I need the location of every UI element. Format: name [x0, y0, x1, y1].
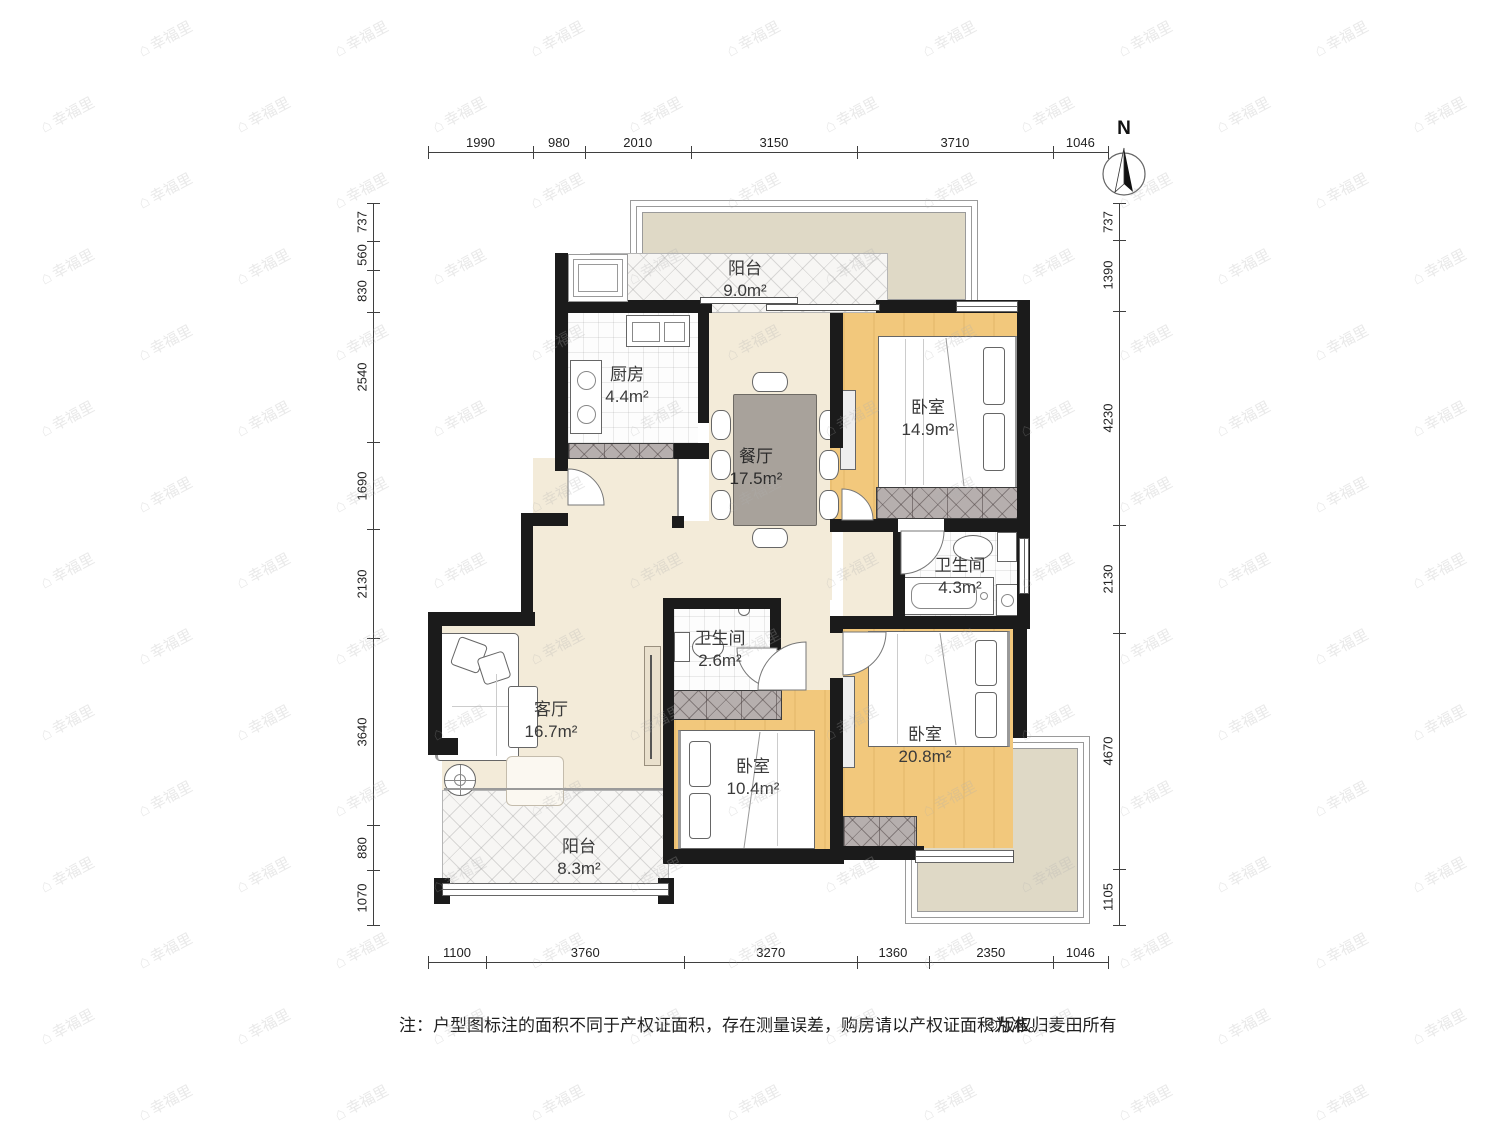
watermark: ⌂幸福里: [1212, 548, 1273, 594]
house-icon: ⌂: [135, 495, 153, 517]
room-name: 餐厅: [730, 446, 783, 467]
entry-closet: [568, 443, 674, 459]
dimension-value: 4670: [1101, 736, 1116, 765]
dimension-tick: [585, 146, 586, 159]
watermark-text: 幸福里: [1226, 94, 1274, 130]
watermark: ⌂幸福里: [36, 548, 97, 594]
dimension-value: 1990: [466, 135, 495, 150]
dimension-right: 73713904230213046701105: [1098, 203, 1122, 925]
watermark-text: 幸福里: [1226, 550, 1274, 586]
dimension-tick: [367, 529, 380, 530]
house-icon: ⌂: [821, 875, 839, 897]
watermark-text: 幸福里: [736, 1082, 784, 1118]
house-icon: ⌂: [37, 1027, 55, 1049]
dimension-tick: [857, 956, 858, 969]
dining-chair: [711, 450, 731, 480]
house-icon: ⌂: [233, 419, 251, 441]
watermark-text: 幸福里: [148, 474, 196, 510]
dimension-value: 2130: [1101, 564, 1116, 593]
fan-cross: [460, 765, 461, 795]
stove-burner: [577, 371, 596, 390]
house-icon: ⌂: [1409, 267, 1427, 289]
watermark-text: 幸福里: [148, 778, 196, 814]
house-icon: ⌂: [37, 875, 55, 897]
house-icon: ⌂: [1311, 647, 1329, 669]
dimension-tick: [1113, 311, 1126, 312]
wardrobe-bedroom-top: [876, 487, 1018, 519]
house-icon: ⌂: [331, 1103, 349, 1125]
wall: [830, 846, 924, 860]
house-icon: ⌂: [233, 1027, 251, 1049]
dimension-tick: [367, 925, 380, 926]
house-icon: ⌂: [331, 647, 349, 669]
watermark: ⌂幸福里: [134, 624, 195, 670]
house-icon: ⌂: [1213, 571, 1231, 593]
sink-bathroom-main: [996, 584, 1018, 616]
watermark-text: 幸福里: [50, 1006, 98, 1042]
house-icon: ⌂: [1213, 723, 1231, 745]
watermark-text: 幸福里: [50, 854, 98, 890]
watermark: ⌂幸福里: [1114, 472, 1175, 518]
room-area: 4.3m²: [935, 576, 986, 599]
room-label-living: 客厅 16.7m²: [525, 699, 578, 743]
watermark-text: 幸福里: [246, 1006, 294, 1042]
watermark-text: 幸福里: [1226, 246, 1274, 282]
watermark-text: 幸福里: [50, 246, 98, 282]
room-area: 2.6m²: [695, 649, 746, 672]
watermark: ⌂幸福里: [1114, 16, 1175, 62]
dimension-value: 1070: [355, 883, 370, 912]
house-icon: ⌂: [919, 1103, 937, 1125]
watermark: ⌂幸福里: [232, 548, 293, 594]
watermark: ⌂幸福里: [722, 16, 783, 62]
watermark: ⌂幸福里: [232, 396, 293, 442]
watermark: ⌂幸福里: [134, 168, 195, 214]
watermark: ⌂幸福里: [526, 16, 587, 62]
hall-floor-b: [777, 600, 830, 692]
watermark-text: 幸福里: [1030, 398, 1078, 434]
sink-basin: [632, 322, 660, 342]
watermark-text: 幸福里: [1226, 702, 1274, 738]
house-icon: ⌂: [1409, 571, 1427, 593]
house-icon: ⌂: [233, 875, 251, 897]
house-icon: ⌂: [429, 115, 447, 137]
room-label-balcony-top: 阳台 9.0m²: [723, 258, 766, 302]
kitchen-sink: [626, 315, 690, 347]
hall-floor-c: [843, 532, 893, 616]
compass-needle-icon: [1096, 138, 1152, 204]
house-icon: ⌂: [1311, 1103, 1329, 1125]
dimension-tick: [367, 870, 380, 871]
sink-bowl: [1001, 594, 1014, 607]
watermark: ⌂幸福里: [1212, 92, 1273, 138]
dimension-tick: [857, 146, 858, 159]
bedroom-door-floor: [843, 489, 877, 520]
dimension-bottom: 110037603270136023501046: [428, 950, 1108, 968]
wall: [663, 598, 781, 609]
house-icon: ⌂: [331, 343, 349, 365]
watermark: ⌂幸福里: [918, 16, 979, 62]
watermark-text: 幸福里: [1324, 474, 1372, 510]
watermark-text: 幸福里: [540, 18, 588, 54]
house-icon: ⌂: [527, 191, 545, 213]
watermark-text: 幸福里: [1422, 702, 1470, 738]
watermark-text: 幸福里: [1324, 322, 1372, 358]
room-name: 卧室: [902, 397, 955, 418]
dimension-tick: [1053, 956, 1054, 969]
watermark: ⌂幸福里: [1310, 928, 1371, 974]
watermark: ⌂幸福里: [232, 92, 293, 138]
house-icon: ⌂: [135, 951, 153, 973]
dimension-tick: [428, 146, 429, 159]
house-icon: ⌂: [331, 191, 349, 213]
watermark-text: 幸福里: [1128, 18, 1176, 54]
house-icon: ⌂: [1311, 951, 1329, 973]
watermark: ⌂幸福里: [134, 16, 195, 62]
house-icon: ⌂: [331, 495, 349, 517]
room-name: 阳台: [557, 836, 600, 857]
watermark-text: 幸福里: [540, 170, 588, 206]
room-label-bedroom-top-right: 卧室 14.9m²: [902, 397, 955, 441]
compass: N: [1096, 120, 1152, 206]
room-name: 卧室: [727, 756, 780, 777]
dimension-value: 1360: [878, 945, 907, 960]
tv-screen: [650, 655, 652, 759]
wall: [1013, 616, 1027, 738]
watermark: ⌂幸福里: [526, 168, 587, 214]
watermark-text: 幸福里: [1128, 1082, 1176, 1118]
house-icon: ⌂: [1311, 343, 1329, 365]
watermark-text: 幸福里: [344, 930, 392, 966]
watermark: ⌂幸福里: [134, 928, 195, 974]
watermark-text: 幸福里: [1226, 854, 1274, 890]
dimension-tick: [1053, 146, 1054, 159]
house-icon: ⌂: [1311, 191, 1329, 213]
watermark-text: 幸福里: [246, 246, 294, 282]
watermark-text: 幸福里: [1324, 18, 1372, 54]
house-icon: ⌂: [233, 115, 251, 137]
pillow: [975, 640, 997, 686]
house-icon: ⌂: [1213, 267, 1231, 289]
dimension-tick: [533, 146, 534, 159]
watermark-text: 幸福里: [246, 550, 294, 586]
watermark-text: 幸福里: [834, 94, 882, 130]
watermark: ⌂幸福里: [330, 928, 391, 974]
watermark: ⌂幸福里: [1408, 548, 1469, 594]
room-name: 阳台: [723, 258, 766, 279]
room-area: 14.9m²: [902, 418, 955, 441]
wall: [428, 612, 442, 748]
watermark: ⌂幸福里: [134, 320, 195, 366]
copyright-note: ©版权归麦田所有: [985, 1011, 1117, 1036]
stove-burner: [577, 405, 596, 424]
house-icon: ⌂: [331, 39, 349, 61]
watermark-text: 幸福里: [148, 170, 196, 206]
window-bathroom-main: [1019, 538, 1029, 594]
house-icon: ⌂: [331, 951, 349, 973]
room-area: 16.7m²: [525, 720, 578, 743]
dimension-tick: [367, 825, 380, 826]
watermark: ⌂幸福里: [1310, 168, 1371, 214]
watermark-text: 幸福里: [1030, 94, 1078, 130]
toilet-tank: [674, 632, 690, 662]
watermark: ⌂幸福里: [1310, 472, 1371, 518]
watermark: ⌂幸福里: [1114, 320, 1175, 366]
balcony-sill-line: [444, 788, 666, 790]
dimension-tick: [1113, 240, 1126, 241]
house-icon: ⌂: [919, 39, 937, 61]
watermark-text: 幸福里: [1422, 246, 1470, 282]
room-area: 4.4m²: [605, 385, 648, 408]
window-balcony-bottom: [442, 883, 669, 896]
watermark-text: 幸福里: [344, 18, 392, 54]
dimension-tick: [367, 638, 380, 639]
dimension-top: 19909802010315037101046: [428, 140, 1108, 158]
watermark-text: 幸福里: [1128, 322, 1176, 358]
glass-partition: [677, 458, 679, 518]
room-label-bedroom-bottom-mid: 卧室 10.4m²: [727, 756, 780, 800]
dimension-value: 830: [355, 280, 370, 302]
window-balcony-corner-frame: [573, 259, 623, 297]
watermark: ⌂幸福里: [1408, 244, 1469, 290]
dimension-tick: [367, 203, 380, 204]
watermark-text: 幸福里: [442, 398, 490, 434]
sink-basin: [664, 322, 685, 342]
watermark: ⌂幸福里: [36, 1004, 97, 1050]
wardrobe-bedroom-mid: [670, 690, 782, 720]
house-icon: ⌂: [723, 1103, 741, 1125]
dimension-tick: [1108, 956, 1109, 969]
watermark-text: 幸福里: [1324, 930, 1372, 966]
toilet-tank: [997, 532, 1017, 562]
watermark-text: 幸福里: [638, 94, 686, 130]
watermark-text: 幸福里: [246, 854, 294, 890]
room-label-bathroom-main: 卫生间 4.3m²: [935, 555, 986, 599]
room-label-dining: 餐厅 17.5m²: [730, 446, 783, 490]
watermark: ⌂幸福里: [36, 396, 97, 442]
watermark: ⌂幸福里: [428, 244, 489, 290]
watermark: ⌂幸福里: [1212, 852, 1273, 898]
house-icon: ⌂: [135, 647, 153, 669]
door-opening-bathroom-main: [898, 519, 944, 532]
watermark: ⌂幸福里: [232, 700, 293, 746]
wall: [521, 513, 533, 615]
watermark: ⌂幸福里: [1114, 928, 1175, 974]
door-opening-bedroom-right: [830, 633, 843, 678]
dimension-tick: [367, 442, 380, 443]
watermark-text: 幸福里: [1422, 94, 1470, 130]
house-icon: ⌂: [135, 799, 153, 821]
kitchen-stove: [570, 360, 602, 434]
dimension-value: 4230: [1101, 403, 1116, 432]
watermark: ⌂幸福里: [428, 92, 489, 138]
watermark-text: 幸福里: [1422, 550, 1470, 586]
dimension-value: 1046: [1066, 135, 1095, 150]
room-label-kitchen: 厨房 4.4m²: [605, 364, 648, 408]
house-icon: ⌂: [135, 39, 153, 61]
house-icon: ⌂: [135, 191, 153, 213]
room-name: 卧室: [899, 724, 952, 745]
dimension-value: 3640: [355, 717, 370, 746]
wall: [770, 598, 781, 650]
pillow: [689, 793, 711, 839]
watermark-text: 幸福里: [540, 1082, 588, 1118]
watermark-text: 幸福里: [344, 170, 392, 206]
dimension-tick: [367, 270, 380, 271]
dimension-value: 980: [548, 135, 570, 150]
wall: [830, 313, 843, 448]
watermark-text: 幸福里: [148, 18, 196, 54]
house-icon: ⌂: [233, 723, 251, 745]
watermark-text: 幸福里: [932, 1082, 980, 1118]
house-icon: ⌂: [1115, 1103, 1133, 1125]
dimension-value: 1100: [443, 945, 471, 960]
watermark: ⌂幸福里: [330, 1080, 391, 1125]
dimension-value: 737: [1101, 211, 1116, 233]
dimension-value: 2130: [355, 569, 370, 598]
house-icon: ⌂: [1409, 723, 1427, 745]
wardrobe-bedroom-right: [843, 816, 917, 850]
watermark: ⌂幸福里: [1408, 852, 1469, 898]
watermark: ⌂幸福里: [1310, 776, 1371, 822]
dimension-value: 560: [355, 244, 370, 266]
house-icon: ⌂: [37, 115, 55, 137]
dimension-value: 2010: [623, 135, 652, 150]
dining-chair: [819, 490, 839, 520]
dimension-line: [428, 962, 1108, 963]
watermark: ⌂幸福里: [1016, 92, 1077, 138]
wall: [428, 738, 458, 755]
wall: [428, 612, 535, 626]
room-name: 卫生间: [695, 628, 746, 649]
house-icon: ⌂: [1115, 39, 1133, 61]
house-icon: ⌂: [429, 419, 447, 441]
dimension-tick: [367, 241, 380, 242]
compass-north-label: N: [1096, 120, 1152, 138]
watermark: ⌂幸福里: [1114, 624, 1175, 670]
wall: [893, 530, 905, 628]
window-balcony-corner: [568, 254, 628, 302]
dining-chair: [752, 528, 788, 548]
dining-chair: [819, 450, 839, 480]
watermark-text: 幸福里: [442, 94, 490, 130]
watermark-text: 幸福里: [50, 94, 98, 130]
watermark-text: 幸福里: [1128, 626, 1176, 662]
room-name: 客厅: [525, 699, 578, 720]
house-icon: ⌂: [723, 39, 741, 61]
watermark-text: 幸福里: [50, 702, 98, 738]
sliding-door-panel: [766, 304, 880, 311]
dimension-value: 1690: [355, 471, 370, 500]
watermark-text: 幸福里: [1324, 778, 1372, 814]
wall: [663, 598, 674, 696]
watermark-text: 幸福里: [148, 322, 196, 358]
watermark-text: 幸福里: [1324, 1082, 1372, 1118]
watermark-text: 幸福里: [1030, 550, 1078, 586]
dimension-tick: [684, 956, 685, 969]
house-icon: ⌂: [1409, 1027, 1427, 1049]
house-icon: ⌂: [1409, 875, 1427, 897]
watermark-text: 幸福里: [1422, 854, 1470, 890]
watermark-text: 幸福里: [932, 18, 980, 54]
room-area: 10.4m²: [727, 777, 780, 800]
house-icon: ⌂: [1017, 267, 1035, 289]
house-icon: ⌂: [1213, 419, 1231, 441]
watermark: ⌂幸福里: [1212, 244, 1273, 290]
watermark: ⌂幸福里: [134, 776, 195, 822]
watermark: ⌂幸福里: [232, 1004, 293, 1050]
dimension-tick: [486, 956, 487, 969]
house-icon: ⌂: [233, 267, 251, 289]
room-name: 卫生间: [935, 555, 986, 576]
house-icon: ⌂: [1409, 115, 1427, 137]
watermark-text: 幸福里: [344, 1082, 392, 1118]
house-icon: ⌂: [1213, 875, 1231, 897]
house-icon: ⌂: [135, 1103, 153, 1125]
house-icon: ⌂: [1213, 115, 1231, 137]
house-icon: ⌂: [37, 419, 55, 441]
dimension-value: 1390: [1101, 261, 1116, 290]
watermark-text: 幸福里: [1422, 1006, 1470, 1042]
dimension-value: 1105: [1101, 883, 1116, 911]
watermark: ⌂幸福里: [232, 244, 293, 290]
dimension-line: [428, 152, 1108, 153]
watermark: ⌂幸福里: [1114, 776, 1175, 822]
watermark-text: 幸福里: [442, 550, 490, 586]
sofa-seam: [496, 674, 497, 756]
dimension-value: 880: [355, 837, 370, 859]
watermark: ⌂幸福里: [1310, 16, 1371, 62]
watermark-text: 幸福里: [442, 246, 490, 282]
watermark-text: 幸福里: [1422, 398, 1470, 434]
wall: [698, 313, 709, 423]
dimension-tick: [929, 956, 930, 969]
house-icon: ⌂: [527, 1103, 545, 1125]
wall-post: [672, 516, 684, 528]
dimension-value: 2350: [976, 945, 1005, 960]
dimension-value: 3710: [940, 135, 969, 150]
house-icon: ⌂: [527, 39, 545, 61]
tv-stand-living: [644, 646, 661, 766]
wall: [830, 616, 1023, 629]
watermark: ⌂幸福里: [1016, 244, 1077, 290]
watermark: ⌂幸福里: [232, 852, 293, 898]
watermark: ⌂幸福里: [36, 244, 97, 290]
house-icon: ⌂: [429, 571, 447, 593]
house-icon: ⌂: [1115, 951, 1133, 973]
watermark-text: 幸福里: [246, 398, 294, 434]
watermark-text: 幸福里: [1128, 930, 1176, 966]
dimension-tick: [1113, 925, 1126, 926]
floor-fan: [444, 764, 476, 796]
watermark: ⌂幸福里: [820, 92, 881, 138]
watermark: ⌂幸福里: [134, 1080, 195, 1125]
wall: [555, 443, 568, 459]
house-icon: ⌂: [331, 799, 349, 821]
watermark: ⌂幸福里: [1408, 700, 1469, 746]
watermark-text: 幸福里: [1128, 778, 1176, 814]
wall: [663, 690, 674, 864]
dimension-value: 3760: [571, 945, 600, 960]
room-label-bathroom-small: 卫生间 2.6m²: [695, 628, 746, 672]
watermark-text: 幸福里: [1226, 398, 1274, 434]
watermark: ⌂幸福里: [526, 1080, 587, 1125]
house-icon: ⌂: [1311, 799, 1329, 821]
house-icon: ⌂: [429, 267, 447, 289]
house-icon: ⌂: [625, 115, 643, 137]
watermark-text: 幸福里: [1128, 474, 1176, 510]
dimension-value: 1046: [1066, 945, 1095, 960]
